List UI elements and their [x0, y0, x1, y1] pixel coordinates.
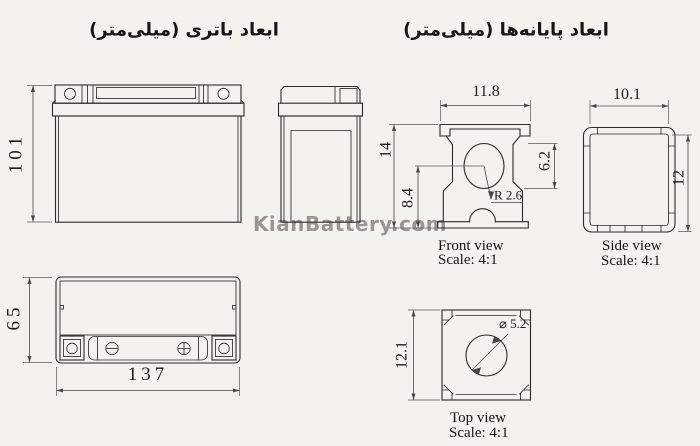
battery-height-label: 101 [6, 133, 27, 174]
battery-width-dimension-65: 65 [4, 278, 53, 363]
battery-depth-label: 65 [4, 304, 25, 331]
terminal-height-dimension-14: 14 [378, 125, 439, 229]
front-right-terminal-circle [218, 88, 229, 99]
battery-front-view: 101 [6, 85, 245, 222]
front-view-scale: Scale: 4:1 [438, 252, 498, 268]
battery-top-view: 65 137 [4, 277, 241, 396]
terminal-bottom-dome [470, 209, 496, 222]
terminal-hole-diameter-label: ⌀ 5.2 [499, 316, 526, 331]
terminal-side-width-label: 10.1 [613, 86, 641, 103]
top-view-caption: Top view [450, 410, 506, 426]
side-view-scale: Scale: 4:1 [601, 253, 661, 269]
terminal-side-height-dimension-12: 12 [671, 135, 692, 232]
plus-symbol [178, 342, 190, 354]
terminal-height-label: 14 [378, 142, 395, 158]
top-left-terminal [60, 336, 84, 360]
terminal-side-view: 10.1 12 Side view Scale: 4:1 [584, 86, 692, 269]
side-recessed-panel [291, 131, 351, 223]
terminal-top-height-dimension-12.1: 12.1 [394, 310, 441, 400]
top-right-terminal [212, 336, 236, 360]
minus-symbol [106, 342, 118, 354]
front-left-terminal-circle [65, 88, 76, 99]
terminal-hole-diameter-callout: ⌀ 5.2 [472, 316, 526, 374]
terminal-center-height-dimension-8.4: 8.4 [400, 166, 485, 228]
battery-height-dimension: 101 [6, 86, 53, 223]
terminal-top-height-label: 12.1 [394, 341, 411, 369]
terminal-side-outline [584, 128, 676, 233]
terminal-front-outline [438, 125, 530, 229]
terminal-radius-label: R 2.6 [494, 188, 523, 203]
terminal-side-width-dimension-10.1: 10.1 [590, 86, 669, 124]
battery-front-outline [53, 85, 245, 222]
top-view-scale: Scale: 4:1 [449, 425, 509, 441]
drawing-sheet: ابعاد باتری (میلی‌متر) ابعاد پایانه‌ها (… [0, 0, 700, 446]
terminal-top-view: ⌀ 5.2 12.1 Top view Scale: 4:1 [394, 310, 531, 441]
terminal-width-label: 11.8 [472, 83, 499, 100]
battery-length-dimension-137: 137 [57, 364, 240, 396]
terminal-width-dimension-11.8: 11.8 [441, 83, 531, 121]
terminal-hole-height-label: 6.2 [537, 151, 554, 171]
side-terminal-box [340, 89, 357, 104]
terminal-side-height-label: 12 [671, 170, 688, 186]
battery-side-view [279, 87, 363, 223]
terminal-front-view: 11.8 14 8.4 6.2 R 2.6 Front [378, 83, 558, 268]
battery-length-label: 137 [128, 364, 169, 385]
technical-drawing: 101 [0, 0, 700, 446]
side-view-caption: Side view [602, 238, 662, 254]
terminal-center-height-label: 8.4 [400, 188, 417, 208]
terminal-hole-height-dimension-6.2: 6.2 [524, 144, 558, 189]
side-lid-outline [281, 87, 360, 104]
